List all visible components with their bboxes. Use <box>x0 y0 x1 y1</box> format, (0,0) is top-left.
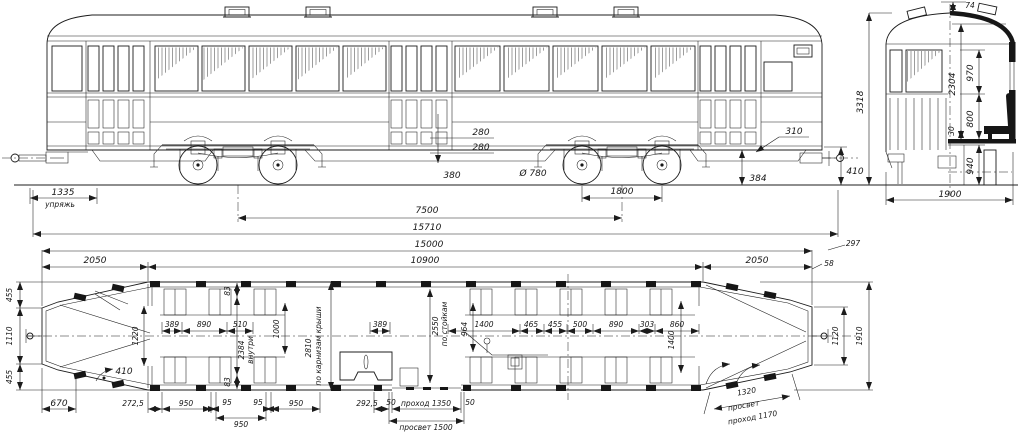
dim-bot-95a: 95 <box>222 398 232 407</box>
end-roof-vent <box>907 7 926 19</box>
dim-coupling-1335: 1335 <box>52 188 75 198</box>
end-body-left <box>886 13 950 152</box>
tram-general-arrangement-drawing: 1335 упряжь 7500 15710 15000 2050 10900 … <box>0 0 1024 432</box>
dim-bot-950c: 950 <box>234 420 249 429</box>
dim-wheelbase-1800: 1800 <box>611 187 634 197</box>
dim-bogie-centers-7500: 7500 <box>416 206 439 216</box>
dim-bot-95b: 95 <box>253 398 263 407</box>
dim-seat-510: 510 <box>233 320 248 329</box>
dim-right-1400: 1400 <box>667 330 676 349</box>
dim-bot-50b: 50 <box>465 398 475 407</box>
floor-section <box>948 139 1016 144</box>
dim-964: 964 <box>460 322 469 337</box>
end-roof-vent <box>978 3 997 15</box>
dim-clearance-1500: просвет 1500 <box>399 423 452 432</box>
dim-mid-860: 860 <box>670 320 685 329</box>
dim-height-384: 384 <box>749 174 766 184</box>
coupler-front <box>11 152 88 163</box>
dim-front-670: 670 <box>50 399 67 409</box>
dim-rear-note: просвет <box>727 398 760 412</box>
dim-seat-1000: 1000 <box>272 319 281 338</box>
plan-view: 455 1110 455 670 410 1220 83 83 2384 вну… <box>5 274 873 432</box>
door-swing-arc <box>706 364 730 384</box>
windows-rear <box>455 46 695 91</box>
dim-left-1110: 1110 <box>5 326 14 345</box>
dim-end-1120: 1120 <box>831 326 840 345</box>
dim-wheel-diameter: Ø 780 <box>518 168 546 179</box>
plan-coupler-rear <box>812 329 828 343</box>
dim-bulkhead-1220: 1220 <box>131 326 140 345</box>
dim-offset-58: 58 <box>824 259 834 268</box>
dim-mid-890: 890 <box>609 320 624 329</box>
dim-roof-2810: 2810 <box>304 338 313 357</box>
dim-posts-2550: 2550 <box>431 316 440 335</box>
dim-bot-950b: 950 <box>289 399 304 408</box>
blueprint-canvas: 1335 упряжь 7500 15710 15000 2050 10900 … <box>0 0 1024 432</box>
dim-bot-272: 272,5 <box>122 399 144 408</box>
dim-970: 970 <box>966 64 976 81</box>
dim-level-280b: 280 <box>472 143 489 153</box>
seat-profile <box>984 93 1015 140</box>
dim-width-1900: 1900 <box>939 190 962 200</box>
dim-roof-note: по карнизам крыши <box>314 306 323 385</box>
corner-window <box>52 46 82 91</box>
door-left <box>88 46 144 144</box>
dim-left-455a: 455 <box>5 288 14 303</box>
dim-bot-50a: 50 <box>386 398 396 407</box>
plan-coupler-front <box>26 329 42 343</box>
dim-mid-1400: 1400 <box>474 320 493 329</box>
end-view: 3318 74 2304 970 800 30 940 1900 <box>856 1 1016 205</box>
dim-step-310: 310 <box>785 127 802 137</box>
dim-30: 30 <box>947 126 956 136</box>
route-number-box <box>794 45 812 57</box>
car-body-outline <box>47 15 822 150</box>
windows-front <box>155 46 386 91</box>
stove <box>340 352 392 380</box>
wheel-section <box>984 150 996 185</box>
dim-posts-note: по стойкам <box>440 301 449 346</box>
dim-rear-1320: 1320 <box>736 385 757 397</box>
dim-mid-500: 500 <box>573 320 588 329</box>
dim-step-380: 380 <box>443 171 460 181</box>
coupler-rear <box>800 151 858 166</box>
dim-interior-2304: 2304 <box>948 72 958 95</box>
dim-overhang-left-2050: 2050 <box>84 256 107 266</box>
dim-buffer-410: 410 <box>846 167 863 177</box>
dim-overhang-right-2050: 2050 <box>746 256 769 266</box>
dim-mid-303: 303 <box>640 320 655 329</box>
dim-coupling-note: упряжь <box>44 200 75 209</box>
dim-seat-890a: 890 <box>197 320 212 329</box>
dim-passage-1350: проход 1350 <box>401 399 451 408</box>
dim-bot-950a: 950 <box>179 399 194 408</box>
dim-level-280a: 280 <box>472 128 489 138</box>
dim-seat-389a: 389 <box>165 320 180 329</box>
dim-floor-940: 940 <box>966 157 976 174</box>
dim-length-10900: 10900 <box>411 256 440 266</box>
corner-window <box>764 62 792 91</box>
end-window <box>890 50 902 92</box>
dim-inner-note: внутри <box>246 336 255 364</box>
dim-mid-465: 465 <box>524 320 539 329</box>
door-middle <box>391 46 447 144</box>
dim-offset-297: 297 <box>846 239 861 248</box>
dim-bot-292: 292,5 <box>356 399 378 408</box>
dim-mid-389: 389 <box>373 320 388 329</box>
dim-inner-2384: 2384 <box>237 340 246 359</box>
dim-mid-455: 455 <box>548 320 563 329</box>
end-step <box>938 156 956 168</box>
dim-top-74: 74 <box>965 1 975 10</box>
dim-width-1910: 1910 <box>855 326 864 345</box>
dim-door-410: 410 <box>115 367 132 377</box>
dim-height-3318: 3318 <box>856 90 866 113</box>
side-elevation: 1335 упряжь 7500 15710 15000 2050 10900 … <box>2 7 1018 306</box>
dim-length-15000: 15000 <box>415 240 444 250</box>
dim-length-15710: 15710 <box>413 223 442 233</box>
dim-800: 800 <box>966 110 976 127</box>
dim-pillar-83t: 83 <box>223 286 232 296</box>
dim-left-455b: 455 <box>5 370 14 385</box>
dim-pillar-83b: 83 <box>223 377 232 387</box>
door-right <box>700 46 756 144</box>
